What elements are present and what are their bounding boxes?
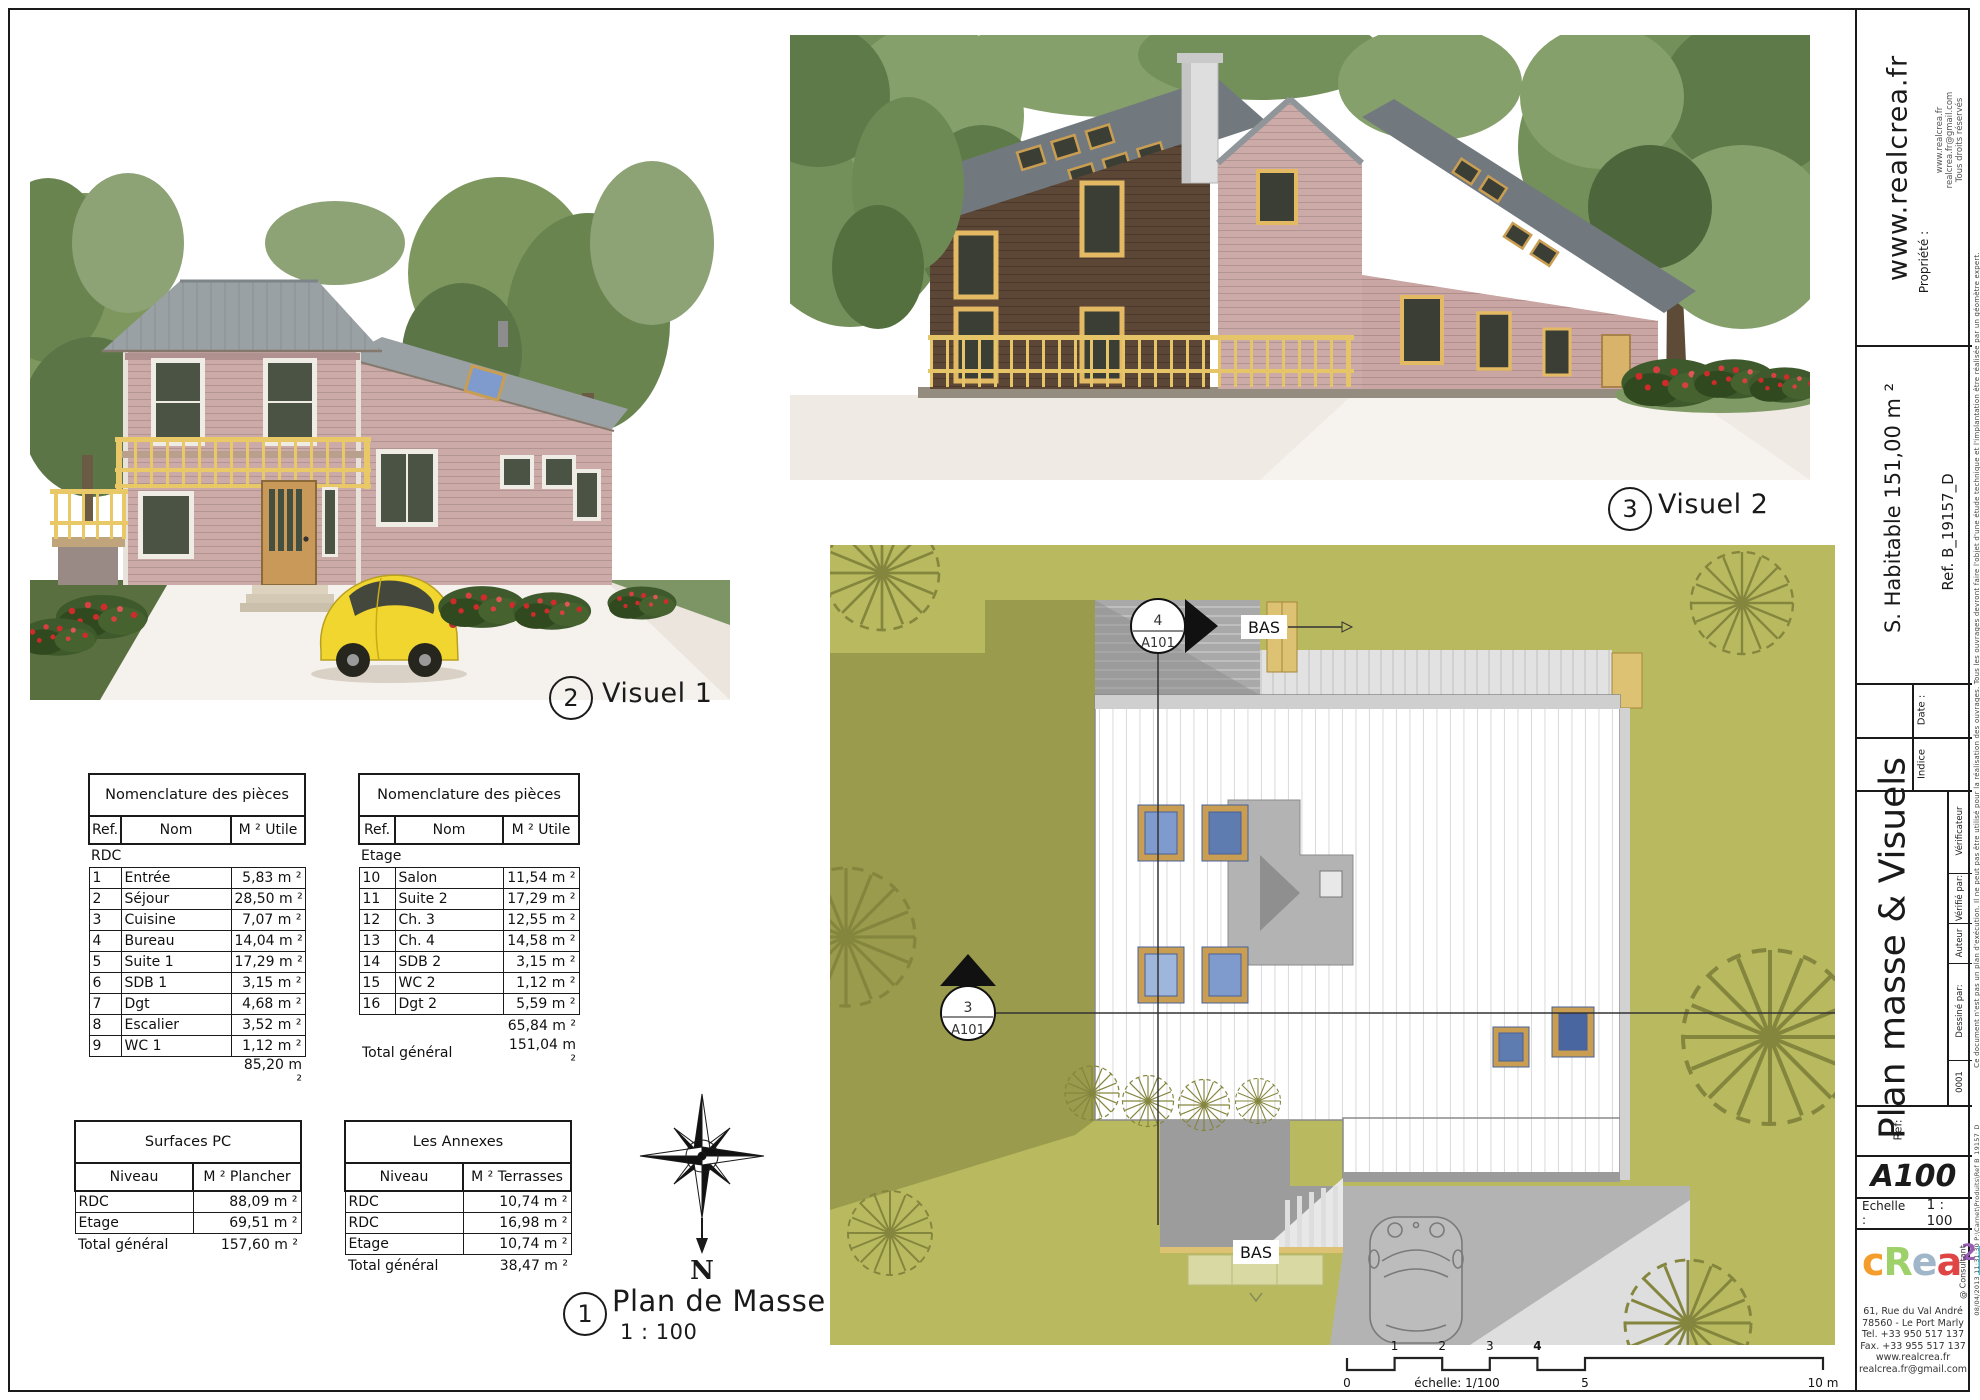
table-row: 3Cuisine7,07 m ² (89, 910, 305, 931)
total-label: Total général (345, 1255, 463, 1278)
scale-row: Echelle : 1 : 100 (1857, 1199, 1970, 1226)
propriete-label: Propriété : (1917, 231, 1931, 293)
scale-label: Echelle : (1857, 1199, 1909, 1227)
subtotal-value: 85,20 m ² (231, 1057, 305, 1090)
svg-text:BAS: BAS (1248, 618, 1280, 637)
sheet-number: A100 (1857, 1157, 1970, 1195)
callout-siteplan-scale: 1 : 100 (620, 1320, 697, 1344)
project-ref: Ref. B_19157_D (1939, 473, 1957, 590)
col-header: Niveau (345, 1163, 463, 1191)
col-header: Nom (121, 816, 231, 844)
legal-disclaimer: Ce document n'est pas un plan d'exécutio… (1973, 252, 1980, 1068)
svg-text:0: 0 (1343, 1376, 1351, 1390)
habitable-surface: S. Habitable 151,00 m ² (1881, 383, 1905, 633)
table-surfaces-pc: Surfaces PC Niveau M ² Plancher RDC88,09… (74, 1120, 302, 1256)
table-row: 8Escalier3,52 m ² (89, 1015, 305, 1036)
svg-text:4: 4 (1154, 613, 1163, 629)
drawn-by-label: Dessiné par: (1955, 984, 1965, 1037)
svg-text:A101: A101 (1141, 636, 1175, 651)
table-row: 5Suite 117,29 m ² (89, 952, 305, 973)
group-label: Etage (359, 844, 579, 868)
svg-text:échelle: 1/100: échelle: 1/100 (1414, 1376, 1499, 1390)
company-contact: www.realcrea.frrealcrea.fr@gmail.comTous… (1935, 92, 1965, 189)
col-header: M ² Utile (503, 816, 579, 844)
table-row: 13Ch. 414,58 m ² (359, 931, 579, 952)
table-row: 14SDB 23,15 m ² (359, 952, 579, 973)
table-row: 6SDB 13,15 m ² (89, 973, 305, 994)
north-label: N (684, 1256, 720, 1286)
scale-bar: 1 2 3 4 0 5 10 m échelle: 1/100 (1337, 1332, 1847, 1394)
deck-top (1260, 650, 1612, 695)
callout-siteplan-number: 1 (563, 1292, 607, 1336)
file-stamp: 08/04/2013 11:31:30 P:\Carnet\Produits\R… (1973, 1124, 1980, 1315)
total-value: 157,60 m ² (193, 1234, 301, 1257)
table-row: 16Dgt 25,59 m ² (359, 994, 579, 1015)
table-row: RDC10,74 m ² (345, 1191, 571, 1213)
table-title: Les Annexes (345, 1121, 571, 1163)
callout-visual2-label: Visuel 2 (1658, 489, 1768, 520)
col-header: Niveau (75, 1163, 193, 1191)
total-value: 151,04 m ² (503, 1037, 579, 1069)
table-annexes: Les Annexes Niveau M ² Terrasses RDC10,7… (344, 1120, 572, 1277)
svg-text:BAS: BAS (1240, 1243, 1272, 1262)
total-value: 38,47 m ² (463, 1255, 571, 1278)
center-gable (1218, 99, 1362, 389)
compass-rose (636, 1072, 768, 1262)
svg-text:A101: A101 (951, 1023, 985, 1038)
company-address: 61, Rue du Val André78560 - Le Port Marl… (1857, 1306, 1969, 1375)
car-top (1369, 1217, 1463, 1343)
table-row: Etage10,74 m ² (345, 1234, 571, 1255)
col-header: Ref. (89, 816, 121, 844)
table-row: 10Salon11,54 m ² (359, 868, 579, 889)
table-row: 4Bureau14,04 m ² (89, 931, 305, 952)
svg-text:2: 2 (1438, 1339, 1446, 1353)
callout-siteplan-label: Plan de Masse (612, 1284, 826, 1318)
table-row: 9WC 11,12 m ² (89, 1036, 305, 1057)
roof-plan (1095, 695, 1630, 1182)
ref-label: Ref: (1892, 1119, 1905, 1140)
subtotal-value: 65,84 m ² (503, 1015, 579, 1038)
date-label: Date : (1917, 695, 1928, 725)
total-label: Total général (359, 1037, 503, 1069)
drawn-by-value: Auteur (1955, 929, 1965, 958)
svg-text:3: 3 (964, 1000, 973, 1016)
checked-by-value: Vérificateur (1955, 807, 1965, 856)
col-header: M ² Utile (231, 816, 305, 844)
site-plan: 4 A101 3 A101 BAS BAS (830, 545, 1835, 1345)
sheet-title: Plan masse & Visuels (1873, 757, 1914, 1139)
group-label: RDC (89, 844, 305, 868)
callout-visual1-number: 2 (549, 676, 593, 720)
company-logo: cRea2l (1862, 1240, 1962, 1284)
north-arrow (696, 1238, 708, 1254)
scale-value: 1 : 100 (1927, 1197, 1970, 1229)
table-row: 7Dgt4,68 m ² (89, 994, 305, 1015)
chimney (1177, 53, 1223, 183)
total-label: Total général (75, 1234, 193, 1257)
building-shadow (830, 600, 1095, 1210)
table-row: 2Séjour28,50 m ² (89, 889, 305, 910)
col-header: Nom (395, 816, 503, 844)
revision-number: 0001 (1955, 1071, 1965, 1093)
bas-label-bottom: BAS (1233, 1240, 1279, 1264)
table-title: Surfaces PC (75, 1121, 301, 1163)
callout-visual2-number: 3 (1608, 487, 1652, 531)
table-row: 15WC 21,12 m ² (359, 973, 579, 994)
table-title: Nomenclature des pièces (89, 774, 305, 816)
svg-text:4: 4 (1533, 1339, 1541, 1353)
col-header: M ² Terrasses (463, 1163, 571, 1191)
table-row: Etage69,51 m ² (75, 1213, 301, 1234)
svg-text:3: 3 (1486, 1339, 1494, 1353)
render-visual-1 (30, 155, 730, 700)
front-steps (240, 585, 340, 612)
render-visual-2 (790, 35, 1810, 480)
table-row: 12Ch. 312,55 m ² (359, 910, 579, 931)
svg-text:10 m: 10 m (1808, 1376, 1839, 1390)
table-row: RDC16,98 m ² (345, 1213, 571, 1234)
svg-text:1: 1 (1391, 1339, 1399, 1353)
table-nomenclature-etage: Nomenclature des pièces Ref. Nom M ² Uti… (358, 773, 580, 1069)
company-website: www.realcrea.fr (1883, 55, 1914, 281)
drawing-sheet: 4 A101 3 A101 BAS BAS 1 2 3 4 0 5 (0, 0, 1980, 1400)
checked-by-label: Vérifié par: (1955, 875, 1965, 921)
table-row: 11Suite 217,29 m ² (359, 889, 579, 910)
table-row: RDC88,09 m ² (75, 1191, 301, 1213)
callout-visual1-label: Visuel 1 (602, 678, 712, 709)
table-nomenclature-rdc: Nomenclature des pièces Ref. Nom M ² Uti… (88, 773, 306, 1089)
col-header: M ² Plancher (193, 1163, 301, 1191)
table-title: Nomenclature des pièces (359, 774, 579, 816)
table-row: 1Entrée5,83 m ² (89, 868, 305, 889)
svg-text:5: 5 (1581, 1376, 1589, 1390)
consultant-tag: @ Consultant (1959, 1245, 1968, 1299)
col-header: Ref. (359, 816, 395, 844)
indice-label: Indice (1917, 749, 1928, 779)
